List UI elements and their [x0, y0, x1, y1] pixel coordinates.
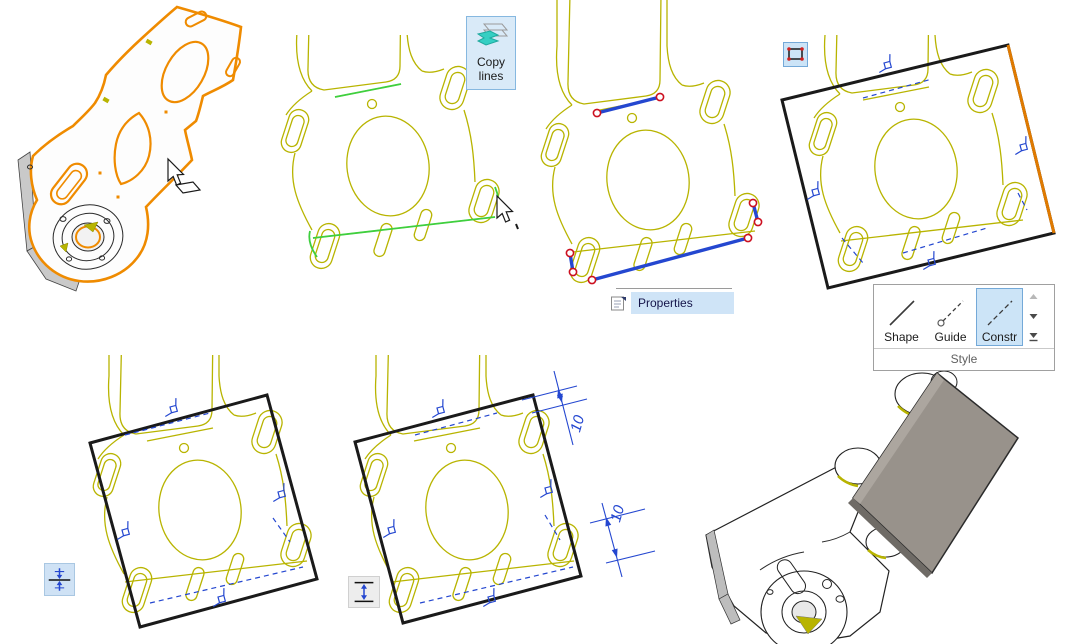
menu-separator [616, 288, 732, 289]
style-button-guide[interactable]: Guide [927, 288, 974, 346]
dimension-value: 10 [567, 413, 588, 434]
style-button-label: Shape [884, 330, 919, 344]
cad-tutorial-montage: 10 10 [0, 0, 1076, 644]
style-button-label: Guide [934, 330, 966, 344]
copy-lines-button[interactable]: Copy lines [466, 16, 516, 90]
menu-item-label: Properties [631, 292, 734, 314]
gallery-scroll-column [1025, 288, 1043, 346]
viewport-step4-rectangle [778, 35, 1076, 295]
copy-lines-icon [474, 22, 508, 52]
face-sketch [807, 35, 1031, 274]
style-button-label: Constr [982, 330, 1017, 344]
selected-green-edges [309, 84, 499, 257]
cursor-arrow-icon [497, 196, 518, 229]
viewport-step3-selected-lines [530, 0, 780, 290]
construction-line-icon [983, 296, 1017, 330]
style-group-title: Style [874, 348, 1054, 370]
dimension-bottom: 10 [590, 503, 655, 577]
viewport-step5-symmetric [40, 355, 340, 644]
dimension-top: 10 [522, 371, 588, 445]
rectangle-tool-icon [785, 45, 806, 64]
style-button-shape[interactable]: Shape [878, 288, 925, 346]
dimension-value: 10 [607, 503, 628, 524]
style-buttons-row: Shape Guide Constr [874, 285, 1054, 348]
rectangle-tool-button[interactable] [783, 42, 808, 67]
copied-blue-lines [566, 93, 761, 283]
construction-lines [379, 399, 573, 606]
menu-item-properties[interactable]: Properties [606, 292, 734, 314]
properties-icon [610, 294, 628, 312]
context-menu: Properties [606, 286, 734, 317]
viewport-step7-extruded-block [700, 362, 1076, 644]
guide-line-icon [934, 296, 968, 330]
symmetric-constraint-icon [45, 564, 74, 595]
viewport-step1-select-face [0, 0, 290, 300]
copy-lines-label: Copy lines [471, 55, 511, 83]
sketch-rectangle [782, 45, 1054, 288]
symmetric-constraint-button[interactable] [44, 563, 75, 596]
selected-face-outline [29, 7, 241, 282]
shape-line-icon [885, 296, 919, 330]
scroll-up-icon[interactable] [1028, 292, 1039, 301]
style-ribbon-group: Shape Guide Constr [873, 284, 1055, 371]
face-sketch [91, 355, 315, 615]
vertical-distance-button[interactable] [348, 576, 380, 608]
vertical-distance-icon [349, 576, 379, 608]
expand-gallery-icon[interactable] [1028, 331, 1039, 342]
style-button-constr[interactable]: Constr [976, 288, 1023, 346]
scroll-down-icon[interactable] [1028, 312, 1039, 321]
